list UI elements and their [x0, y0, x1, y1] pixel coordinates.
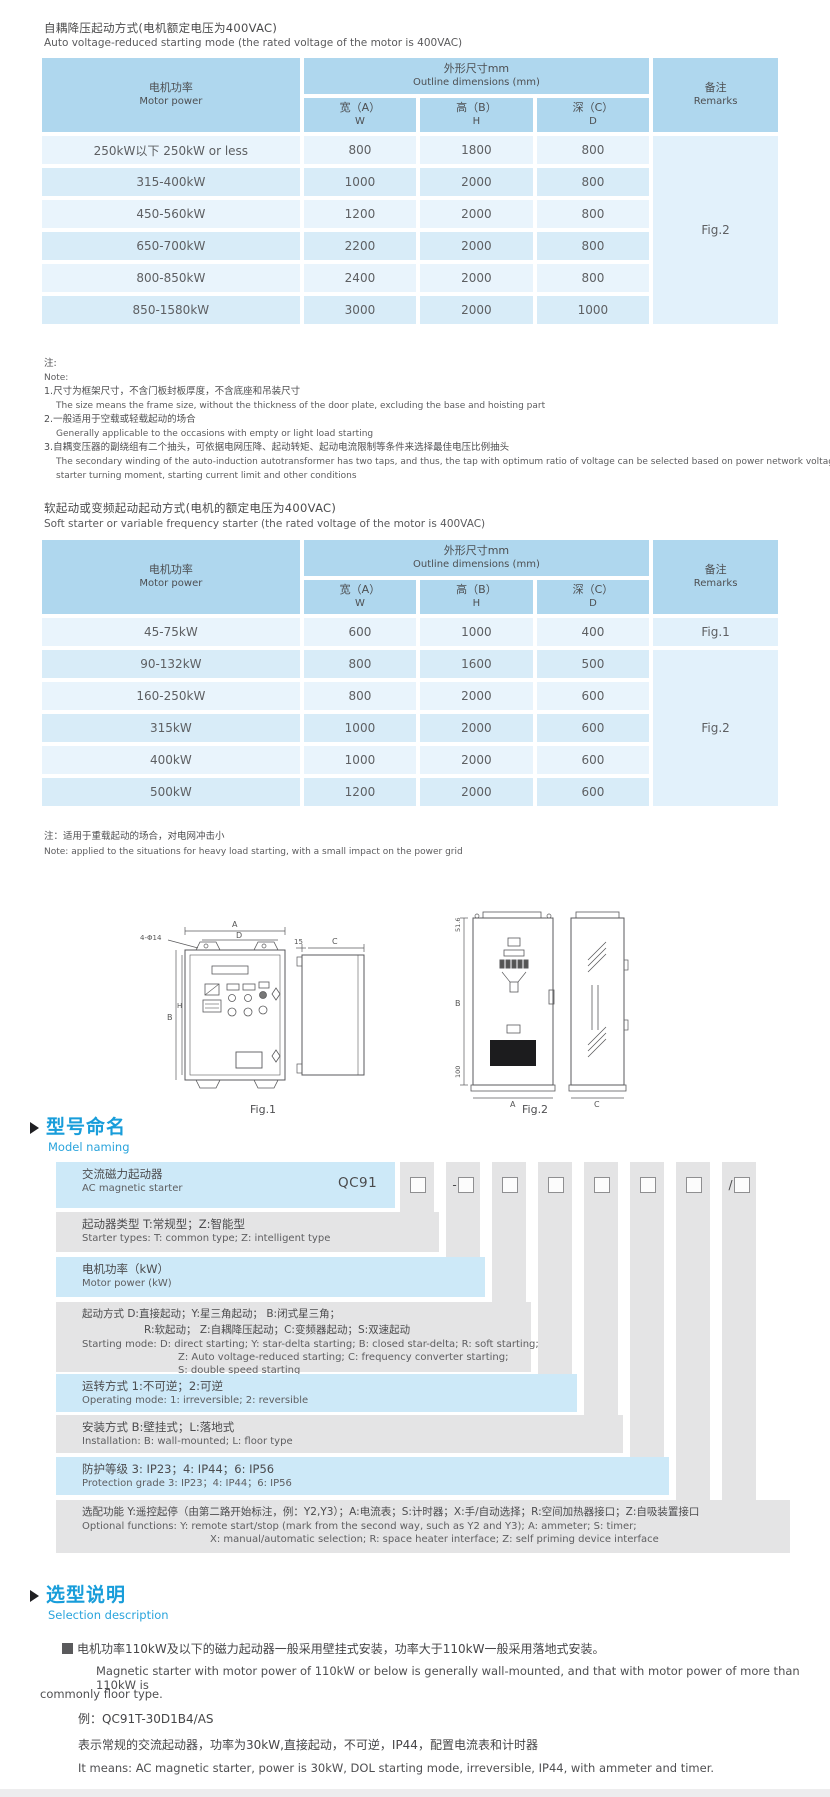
col-header-outline: 外形尺寸mmOutline dimensions (mm) [304, 540, 649, 576]
model-code-base: QC91 [338, 1175, 377, 1191]
section-marker-icon [30, 1122, 39, 1134]
note-line: The size means the frame size, without t… [44, 399, 830, 413]
cell-depth: 400 [537, 618, 650, 646]
note-line: The secondary winding of the auto-induct… [44, 455, 830, 469]
note-line: Note: [44, 371, 830, 385]
cell-power: 315-400kW [42, 168, 300, 196]
page-edge [0, 1789, 830, 1797]
cell-depth: 800 [537, 136, 650, 164]
model-row-label-en: Operating mode: 1: irreversible; 2: reve… [82, 1394, 577, 1407]
table-row: 90-132kW 800 1600 500 Fig.2 [42, 650, 778, 678]
cell-depth: 1000 [537, 296, 650, 324]
cell-height: 2000 [420, 168, 532, 196]
note-line: 注: [44, 357, 830, 371]
model-row-installation: 安装方式 B:壁挂式；L:落地式 Installation: B: wall-m… [56, 1415, 623, 1453]
cell-depth: 600 [537, 778, 650, 806]
auto-section-title-zh: 自耦降压起动方式(电机额定电压为400VAC) [44, 20, 277, 36]
cell-power: 400kW [42, 746, 300, 774]
cell-height: 1000 [420, 618, 532, 646]
code-box-icon [548, 1177, 564, 1193]
selection-paragraph-en2: commonly floor type. [40, 1687, 163, 1701]
model-row-starting-mode: 起动方式 D:直接起动；Y:星三角起动； B:闭式星三角； R:软起动； Z:自… [56, 1302, 531, 1372]
cell-width: 800 [304, 682, 416, 710]
cell-power: 650-700kW [42, 232, 300, 260]
model-row-label-zh: 运转方式 1:不可逆；2:可逆 [82, 1378, 577, 1394]
model-row-label-zh: 防护等级 3: IP23；4: IP44；6: IP56 [82, 1461, 669, 1477]
soft-section-title-en: Soft starter or variable frequency start… [44, 518, 485, 530]
table-row: 45-75kW 600 1000 400 Fig.1 [42, 618, 778, 646]
fig1-caption: Fig.1 [250, 1103, 276, 1116]
code-box-icon [458, 1177, 474, 1193]
code-prefix: - [452, 1178, 456, 1192]
code-column-band [584, 1162, 618, 1415]
code-column-band [722, 1162, 756, 1500]
model-naming-heading-en: Model naming [48, 1140, 130, 1154]
cell-power: 500kW [42, 778, 300, 806]
model-row-label-en: Motor power (kW) [82, 1277, 485, 1290]
cell-depth: 600 [537, 714, 650, 742]
fig2-dim-c: C [594, 1100, 600, 1109]
cell-power: 250kW以下 250kW or less [42, 136, 300, 164]
soft-section-title-zh: 软起动或变频起动起动方式(电机的额定电压为400VAC) [44, 500, 336, 516]
cell-width: 800 [304, 136, 416, 164]
cell-width: 3000 [304, 296, 416, 324]
model-row-label-zh: 安装方式 B:壁挂式；L:落地式 [82, 1419, 623, 1435]
code-box-icon [410, 1177, 426, 1193]
selection-heading-en: Selection description [48, 1608, 169, 1622]
selection-text-zh: 电机功率110kW及以下的磁力起动器一般采用壁挂式安装，功率大于110kW一般采… [77, 1642, 604, 1656]
model-row-operating-mode: 运转方式 1:不可逆；2:可逆 Operating mode: 1: irrev… [56, 1374, 577, 1412]
selection-heading-zh: 选型说明 [46, 1580, 126, 1607]
code-position-4 [538, 1175, 572, 1195]
model-row-label-zh: 电机功率（kW） [82, 1261, 485, 1277]
cell-height: 2000 [420, 682, 532, 710]
fig1-drawing [168, 927, 364, 1088]
code-box-icon [502, 1177, 518, 1193]
auto-notes: 注: Note: 1.尺寸为框架尺寸，不含门板封板厚度，不含底座和吊装尺寸 Th… [44, 357, 830, 483]
model-row-label-en: Protection grade 3: IP23；4: IP44；6: IP56 [82, 1477, 669, 1490]
model-row-label-en: Optional functions: Y: remote start/stop… [82, 1520, 790, 1533]
col-header-depth: 深（C）D [537, 98, 650, 132]
model-row-starter-type: 起动器类型 T:常规型；Z:智能型 Starter types: T: comm… [56, 1212, 439, 1252]
cell-depth: 600 [537, 682, 650, 710]
code-position-6 [630, 1175, 664, 1195]
fig2-caption: Fig.2 [522, 1103, 548, 1116]
fig1-dim-d: D [236, 931, 242, 940]
outline-drawings: A D 4-Φ14 B H 15 C 51.6 B 100 A C Fig.1 … [40, 860, 780, 1118]
model-row-label-zh: 起动器类型 T:常规型；Z:智能型 [82, 1216, 439, 1232]
cell-height: 2000 [420, 778, 532, 806]
model-row-label-en: Z: Auto voltage-reduced starting; C: fre… [82, 1351, 531, 1364]
selection-desc-zh: 表示常规的交流起动器，功率为30kW,直接起动，不可逆，IP44，配置电流表和计… [78, 1736, 538, 1753]
col-header-motor-power: 电机功率Motor power [42, 58, 300, 132]
fig1-dim-c: C [332, 937, 338, 946]
selection-desc-en: It means: AC magnetic starter, power is … [78, 1761, 714, 1775]
cell-power: 800-850kW [42, 264, 300, 292]
fig2-dim-b: B [455, 999, 461, 1008]
fig1-dim-holes: 4-Φ14 [140, 934, 162, 942]
cell-depth: 600 [537, 746, 650, 774]
cell-power: 450-560kW [42, 200, 300, 228]
col-header-remarks: 备注Remarks [653, 58, 778, 132]
cell-remark-fig2: Fig.2 [653, 136, 778, 324]
cell-power: 90-132kW [42, 650, 300, 678]
note-line: Generally applicable to the occasions wi… [44, 427, 830, 441]
cell-depth: 800 [537, 264, 650, 292]
model-row-optional-functions: 选配功能 Y:遥控起停（由第二路开始标注，例：Y2,Y3）；A:电流表；S:计时… [56, 1500, 790, 1553]
note-line: starter turning moment, starting current… [44, 469, 830, 483]
section-marker-icon [30, 1590, 39, 1602]
code-box-icon [686, 1177, 702, 1193]
model-row-label-zh: 选配功能 Y:遥控起停（由第二路开始标注，例：Y2,Y3）；A:电流表；S:计时… [82, 1504, 790, 1520]
selection-paragraph-en1: Magnetic starter with motor power of 110… [96, 1664, 830, 1692]
cell-depth: 800 [537, 168, 650, 196]
cell-height: 2000 [420, 264, 532, 292]
soft-note-zh: 注：适用于重载起动的场合，对电网冲击小 [44, 830, 225, 844]
code-position-7 [676, 1175, 710, 1195]
cell-height: 2000 [420, 746, 532, 774]
cell-width: 600 [304, 618, 416, 646]
model-row-motor-power: 电机功率（kW） Motor power (kW) [56, 1257, 485, 1297]
cell-remark-fig1: Fig.1 [653, 618, 778, 646]
model-naming-heading-zh: 型号命名 [46, 1112, 126, 1139]
cell-height: 2000 [420, 296, 532, 324]
cell-width: 1200 [304, 200, 416, 228]
cell-power: 45-75kW [42, 618, 300, 646]
col-header-outline: 外形尺寸mmOutline dimensions (mm) [304, 58, 649, 94]
fig1-dim-15: 15 [294, 938, 303, 946]
cell-height: 2000 [420, 714, 532, 742]
fig2-dim-100: 100 [454, 1066, 462, 1078]
note-line: 1.尺寸为框架尺寸，不含门板封板厚度，不含底座和吊装尺寸 [44, 385, 830, 399]
code-position-8: / [722, 1175, 756, 1195]
model-row-label-en: X: manual/automatic selection; R: space … [82, 1533, 790, 1546]
code-position-1 [400, 1175, 434, 1195]
model-row-label-en: Starter types: T: common type; Z: intell… [82, 1232, 439, 1245]
model-row-label-zh: 起动方式 D:直接起动；Y:星三角起动； B:闭式星三角； [82, 1306, 531, 1322]
soft-dimensions-table: 电机功率Motor power 外形尺寸mmOutline dimensions… [38, 536, 782, 810]
cell-width: 1200 [304, 778, 416, 806]
code-box-icon [734, 1177, 750, 1193]
square-bullet-icon [62, 1643, 73, 1654]
selection-paragraph-zh: 电机功率110kW及以下的磁力起动器一般采用壁挂式安装，功率大于110kW一般采… [62, 1638, 604, 1657]
col-header-depth: 深（C）D [537, 580, 650, 614]
code-prefix: / [728, 1178, 732, 1192]
fig1-dim-h: H [177, 1002, 182, 1010]
model-row-label-en: Installation: B: wall-mounted; L: floor … [82, 1435, 623, 1448]
code-position-2: - [446, 1175, 480, 1195]
cell-remark-fig2: Fig.2 [653, 650, 778, 806]
fig1-dim-b: B [167, 1013, 173, 1022]
cell-height: 1800 [420, 136, 532, 164]
col-header-height: 高（B）H [420, 98, 532, 132]
cell-depth: 800 [537, 232, 650, 260]
cell-width: 800 [304, 650, 416, 678]
fig1-dim-a: A [232, 920, 238, 929]
col-header-remarks: 备注Remarks [653, 540, 778, 614]
model-row-protection-grade: 防护等级 3: IP23；4: IP44；6: IP56 Protection … [56, 1457, 669, 1495]
cell-power: 850-1580kW [42, 296, 300, 324]
cell-depth: 500 [537, 650, 650, 678]
fig2-dim-516: 51.6 [454, 918, 462, 932]
cell-width: 1000 [304, 714, 416, 742]
code-box-icon [594, 1177, 610, 1193]
col-header-width: 宽（A）W [304, 580, 416, 614]
soft-note-en: Note: applied to the situations for heav… [44, 845, 463, 859]
cell-height: 2000 [420, 232, 532, 260]
selection-example: 例：QC91T-30D1B4/AS [78, 1710, 214, 1727]
code-position-5 [584, 1175, 618, 1195]
col-header-motor-power: 电机功率Motor power [42, 540, 300, 614]
cell-width: 2400 [304, 264, 416, 292]
cell-height: 1600 [420, 650, 532, 678]
code-box-icon [640, 1177, 656, 1193]
model-row-label-en: Starting mode: D: direct starting; Y: st… [82, 1338, 531, 1351]
catalog-page: 自耦降压起动方式(电机额定电压为400VAC) Auto voltage-red… [0, 0, 830, 1797]
col-header-height: 高（B）H [420, 580, 532, 614]
cell-width: 2200 [304, 232, 416, 260]
code-position-3 [492, 1175, 526, 1195]
auto-dimensions-table: 电机功率Motor power 外形尺寸mmOutline dimensions… [38, 54, 782, 328]
model-row-label-zh: R:软起动； Z:自耦降压起动；C:变频器起动；S:双速起动 [82, 1322, 531, 1338]
fig2-dim-a: A [510, 1100, 516, 1109]
cell-width: 1000 [304, 746, 416, 774]
code-column-band [630, 1162, 664, 1457]
fig2-drawing [460, 912, 628, 1098]
auto-section-title-en: Auto voltage-reduced starting mode (the … [44, 37, 462, 49]
code-column-band [676, 1162, 710, 1500]
cell-power: 315kW [42, 714, 300, 742]
cell-power: 160-250kW [42, 682, 300, 710]
cell-depth: 800 [537, 200, 650, 228]
note-line: 2.一般适用于空载或轻载起动的场合 [44, 413, 830, 427]
model-naming-table: 交流磁力起动器 AC magnetic starter QC91 - / 起动器… [56, 1162, 790, 1553]
col-header-width: 宽（A）W [304, 98, 416, 132]
cell-height: 2000 [420, 200, 532, 228]
table-row: 250kW以下 250kW or less 800 1800 800 Fig.2 [42, 136, 778, 164]
note-line: 3.自耦变压器的副绕组有二个抽头，可依据电网压降、起动转矩、起动电流限制等条件来… [44, 441, 830, 455]
cell-width: 1000 [304, 168, 416, 196]
